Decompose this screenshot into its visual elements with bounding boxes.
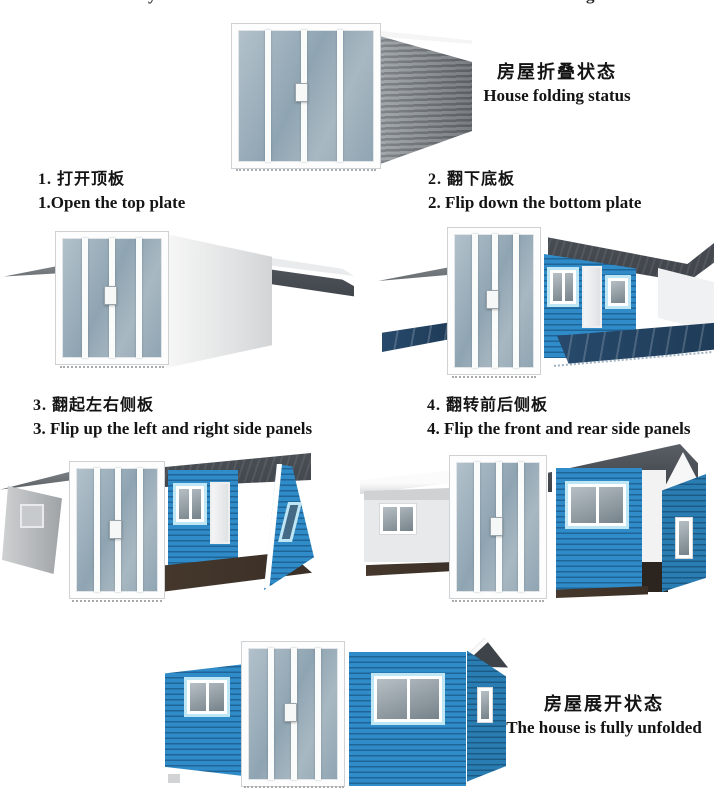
cropped-letter: y — [148, 0, 157, 5]
left-wing-window — [380, 504, 416, 534]
step3-house-illustration — [0, 444, 334, 604]
support-foot — [168, 774, 180, 783]
window-mullion — [562, 273, 565, 301]
inner-core-blue-wall — [168, 470, 238, 570]
core-window — [550, 270, 576, 304]
glass-sliding-door — [450, 456, 546, 598]
door-mullion — [518, 462, 524, 592]
door-mullion — [268, 648, 274, 780]
floor-plate-left — [382, 322, 452, 352]
step1-label-en: 1.Open the top plate — [38, 192, 185, 213]
left-wing-window — [187, 680, 227, 714]
window-mullion — [596, 487, 599, 523]
glass-sliding-door — [56, 232, 168, 364]
door-handle — [109, 520, 122, 539]
step3-label: 3. 翻起左右侧板 3. Flip up the left and right … — [33, 396, 312, 439]
door-mullion — [472, 234, 478, 368]
leaning-side-panel-left — [2, 486, 62, 574]
window-mullion — [407, 679, 410, 719]
side-window — [478, 688, 492, 722]
door-mullion — [265, 30, 271, 162]
door-mullion — [474, 462, 480, 592]
door-mullion — [94, 468, 100, 592]
folded-status-zh: 房屋折叠状态 — [462, 58, 652, 84]
door-handle — [104, 286, 117, 305]
interior-ceiling — [658, 268, 714, 332]
door-handle — [486, 290, 499, 309]
step1-label: 1. 打开顶板 1.Open the top plate — [38, 170, 185, 213]
right-wing-blue-panel — [344, 652, 466, 786]
window-mullion — [206, 683, 209, 711]
base-dotted-trim — [72, 600, 162, 602]
step4-label: 4. 翻转前后侧板 4. Flip the front and rear sid… — [427, 396, 691, 439]
base-dotted-trim — [452, 376, 536, 378]
front-window — [568, 484, 626, 526]
door-mullion — [513, 234, 519, 368]
foldable-container-house-diagram: y g 房屋折叠状态 House folding status 1. 打开顶板 … — [0, 0, 714, 800]
right-wing-window — [374, 676, 442, 722]
core-door — [210, 482, 230, 544]
unfolded-status-en: The house is fully unfolded — [494, 718, 714, 738]
door-mullion — [137, 468, 143, 592]
front-blue-panel — [552, 468, 642, 594]
cropped-title-fragment-left: y — [148, 0, 164, 6]
glass-sliding-door — [70, 462, 164, 598]
step4-label-en: 4. Flip the front and rear side panels — [427, 418, 691, 439]
left-wing-blue-panel — [165, 662, 243, 776]
window-mullion — [397, 507, 400, 531]
base-dotted-trim — [236, 169, 376, 171]
glass-sliding-door — [232, 24, 380, 168]
step4-house-illustration — [358, 444, 714, 604]
step4-label-zh: 4. 翻转前后侧板 — [427, 396, 691, 416]
base-dotted-trim — [60, 366, 164, 368]
side-window — [676, 518, 692, 558]
base-dotted-trim — [452, 600, 544, 602]
step2-house-illustration — [372, 218, 714, 382]
cropped-letter: g — [586, 0, 595, 5]
core-window — [608, 278, 628, 306]
core-window — [176, 486, 204, 522]
corner-post — [552, 468, 556, 594]
panel-window — [278, 502, 302, 542]
cropped-title-fragment-right: g — [586, 0, 602, 6]
door-mullion — [315, 648, 321, 780]
door-handle — [284, 703, 297, 722]
corner-post — [344, 652, 349, 786]
step2-label: 2. 翻下底板 2. Flip down the bottom plate — [428, 170, 641, 213]
window-mullion — [189, 489, 192, 519]
step1-house-illustration — [4, 220, 354, 376]
folded-house-illustration — [230, 14, 472, 172]
step2-label-zh: 2. 翻下底板 — [428, 170, 641, 190]
step2-label-en: 2. Flip down the bottom plate — [428, 192, 641, 213]
left-wing-wall — [364, 488, 450, 562]
step1-label-zh: 1. 打开顶板 — [38, 170, 185, 190]
core-door — [582, 266, 602, 328]
panel-window — [20, 504, 44, 529]
folded-status-en: House folding status — [462, 86, 652, 106]
door-mullion — [82, 238, 88, 358]
unfolded-status-zh: 房屋展开状态 — [494, 690, 714, 716]
unfolded-house-illustration — [160, 636, 510, 788]
door-mullion — [136, 238, 142, 358]
unfolded-status-caption: 房屋展开状态 The house is fully unfolded — [494, 690, 714, 738]
receding-blue-side — [662, 474, 706, 592]
step3-label-zh: 3. 翻起左右侧板 — [33, 396, 312, 416]
glass-sliding-door — [242, 642, 344, 786]
door-handle — [490, 517, 503, 536]
container-side-wall — [166, 234, 272, 368]
left-wing-floor — [366, 562, 454, 576]
door-handle — [295, 83, 308, 102]
step3-label-en: 3. Flip up the left and right side panel… — [33, 418, 312, 439]
door-mullion — [337, 30, 343, 162]
base-dotted-trim — [244, 786, 344, 788]
folded-status-caption: 房屋折叠状态 House folding status — [462, 58, 652, 106]
glass-sliding-door — [448, 228, 540, 374]
